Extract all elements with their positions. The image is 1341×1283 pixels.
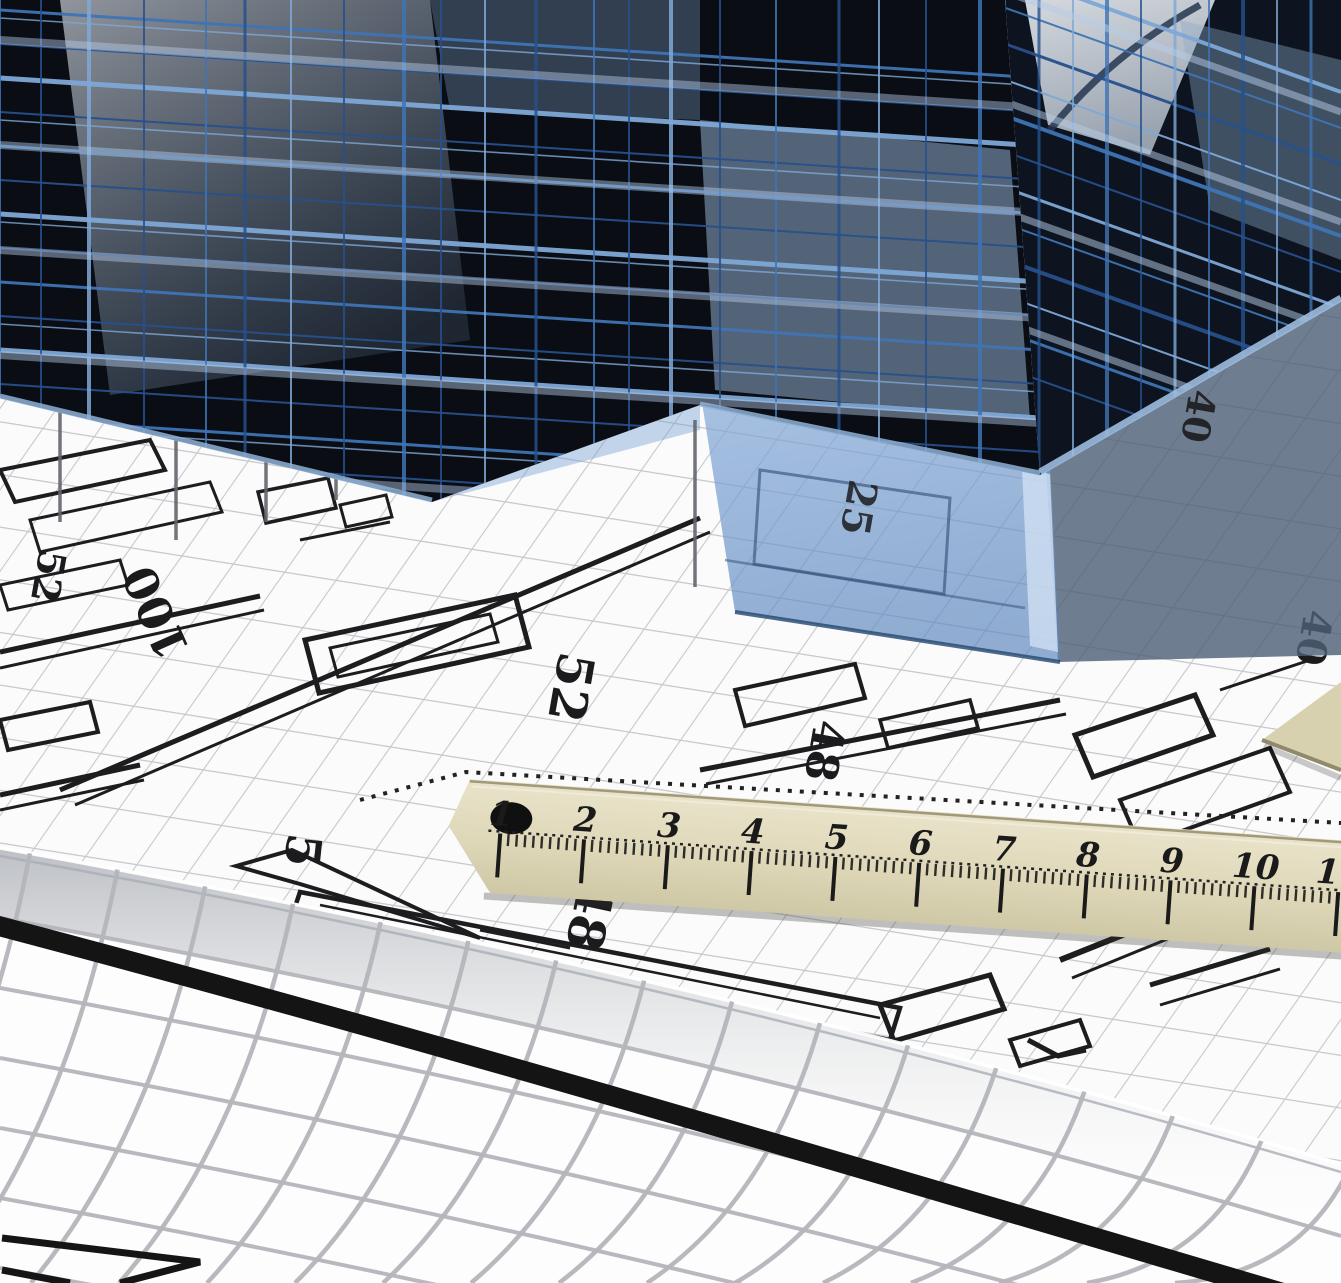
ruler-minor-tick [541, 836, 542, 848]
ruler-minor-tick [1178, 881, 1179, 893]
ruler-minor-tick [1061, 873, 1062, 885]
ruler-minor-tick [1212, 883, 1213, 895]
ruler-minor-tick [818, 856, 819, 868]
ruler-minor-tick [575, 839, 576, 851]
ruler-minor-tick [692, 847, 693, 859]
ruler-minor-tick [994, 868, 995, 880]
ruler-minor-tick [977, 867, 978, 879]
ruler-number: 2 [571, 800, 598, 842]
ruler-minor-tick [684, 846, 685, 858]
ruler-minor-tick [1295, 889, 1296, 901]
ruler-minor-tick [902, 862, 903, 874]
ruler-minor-tick [717, 849, 718, 861]
ruler-minor-tick [1304, 890, 1305, 902]
ruler-minor-tick [608, 841, 609, 853]
ruler-minor-tick [734, 850, 735, 862]
ruler-minor-tick [617, 842, 618, 854]
ruler-minor-tick [1329, 892, 1330, 904]
ruler-minor-tick [1187, 882, 1188, 894]
ruler-minor-tick [1103, 876, 1104, 888]
ruler-minor-tick [893, 861, 894, 873]
ruler-number: 3 [656, 805, 682, 847]
ruler-minor-tick [759, 852, 760, 864]
ruler-minor-tick [1270, 887, 1271, 899]
ruler-number: 4 [740, 811, 766, 853]
ruler-minor-tick [675, 846, 676, 858]
ruler-minor-tick [1128, 877, 1129, 889]
dimension-label: 52 [22, 546, 76, 606]
ruler-minor-tick [1027, 870, 1028, 882]
ruler-minor-tick [768, 852, 769, 864]
ruler-minor-tick [1228, 884, 1229, 896]
ruler-minor-tick [1111, 876, 1112, 888]
ruler-minor-tick [709, 848, 710, 860]
ruler-minor-tick [1119, 877, 1120, 889]
ruler-minor-tick [1262, 887, 1263, 899]
ruler-minor-tick [566, 838, 567, 850]
dimension-label: 48 [794, 716, 855, 785]
ruler-minor-tick [1078, 874, 1079, 886]
blueprint-scene-svg: 52 100 52 48 48 5 40 25 40 25 [0, 0, 1341, 1283]
ruler-number: 11 [1315, 852, 1341, 895]
ruler-minor-tick [592, 840, 593, 852]
ruler-minor-tick [525, 835, 526, 847]
ruler-minor-tick [1195, 882, 1196, 894]
ruler-minor-tick [1044, 872, 1045, 884]
ruler-minor-tick [985, 867, 986, 879]
ruler-minor-tick [843, 858, 844, 870]
ruler-minor-tick [1321, 891, 1322, 903]
ruler-minor-tick [558, 838, 559, 850]
ruler-number: 1 [488, 794, 514, 836]
ruler-minor-tick [742, 850, 743, 862]
ruler-number: 5 [824, 817, 850, 859]
ruler-minor-tick [1161, 880, 1162, 892]
ruler-minor-tick [868, 859, 869, 871]
ruler-minor-tick [851, 858, 852, 870]
ruler-minor-tick [1220, 884, 1221, 896]
ruler-number: 7 [991, 829, 1018, 871]
ruler-minor-tick [701, 848, 702, 860]
ruler-minor-tick [726, 849, 727, 861]
glass-pane [430, 0, 700, 120]
ruler-minor-tick [910, 862, 911, 874]
dimension-label: 40 [1172, 386, 1226, 446]
ruler-minor-tick [1287, 889, 1288, 901]
ruler-minor-tick [793, 854, 794, 866]
ruler-minor-tick [650, 844, 651, 856]
ruler-minor-tick [1237, 885, 1238, 897]
ruler-minor-tick [1036, 871, 1037, 883]
ruler-number: 6 [907, 823, 933, 865]
ruler-minor-tick [1145, 879, 1146, 891]
ruler-minor-tick [885, 860, 886, 872]
ruler-minor-tick [969, 866, 970, 878]
blueprint-scene: 52 100 52 48 48 5 40 25 40 25 [0, 0, 1341, 1283]
dimension-label: 25 [830, 476, 886, 539]
ruler-number: 10 [1231, 846, 1281, 889]
ruler-minor-tick [1203, 883, 1204, 895]
dimension-label: 5 [273, 831, 332, 870]
ruler-number: 9 [1159, 841, 1185, 883]
ruler-minor-tick [550, 837, 551, 849]
ruler-number: 8 [1074, 835, 1101, 877]
ruler-minor-tick [801, 855, 802, 867]
ruler-minor-tick [1279, 888, 1280, 900]
ruler-minor-tick [1052, 872, 1053, 884]
ruler-minor-tick [784, 853, 785, 865]
ruler-minor-tick [876, 860, 877, 872]
ruler-minor-tick [860, 859, 861, 871]
ruler-minor-tick [935, 864, 936, 876]
ruler-minor-tick [960, 866, 961, 878]
ruler-minor-tick [1245, 886, 1246, 898]
ruler-minor-tick [776, 853, 777, 865]
ruler-minor-tick [1153, 879, 1154, 891]
ruler-minor-tick [516, 835, 517, 847]
ruler-minor-tick [1011, 869, 1012, 881]
ruler-minor-tick [600, 841, 601, 853]
ruler-minor-tick [1094, 875, 1095, 887]
ruler-minor-tick [927, 863, 928, 875]
ruler-minor-tick [659, 845, 660, 857]
ruler-minor-tick [1136, 878, 1137, 890]
ruler-minor-tick [642, 843, 643, 855]
ruler-minor-tick [952, 865, 953, 877]
ruler-minor-tick [826, 856, 827, 868]
ruler-minor-tick [533, 836, 534, 848]
ruler-minor-tick [1019, 870, 1020, 882]
ruler-minor-tick [625, 842, 626, 854]
ruler-minor-tick [633, 843, 634, 855]
ruler-minor-tick [944, 865, 945, 877]
ruler-minor-tick [508, 834, 509, 846]
ruler-minor-tick [809, 855, 810, 867]
ruler-minor-tick [1312, 890, 1313, 902]
dimension-label: 52 [536, 648, 606, 727]
ruler-minor-tick [1069, 873, 1070, 885]
